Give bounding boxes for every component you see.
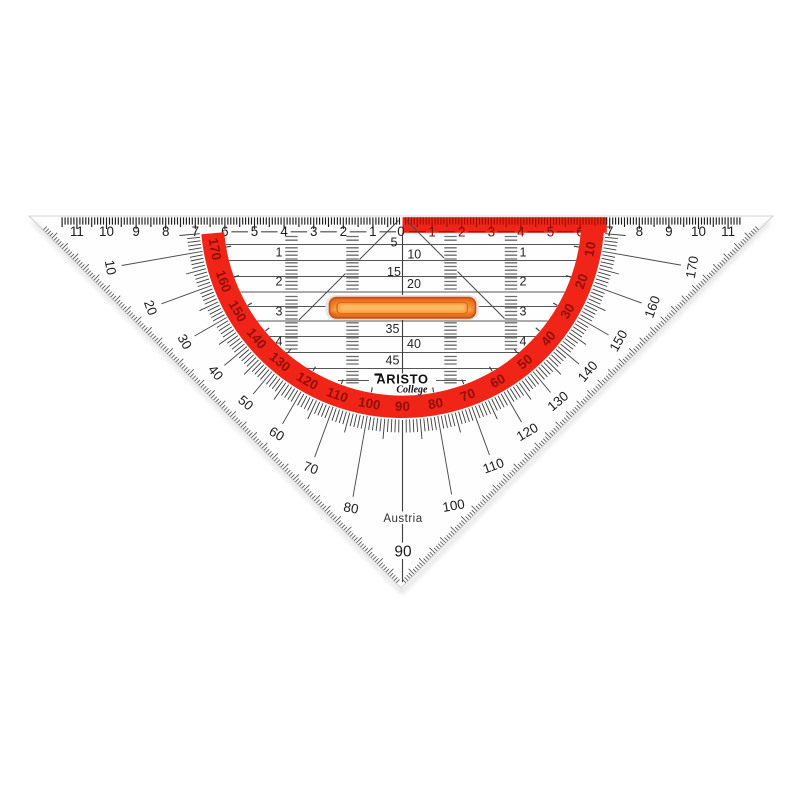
svg-text:9: 9 [665,224,672,239]
svg-text:45: 45 [386,354,400,368]
svg-text:80: 80 [427,395,444,412]
svg-text:11: 11 [721,224,735,239]
svg-text:7: 7 [606,224,613,239]
svg-text:40: 40 [407,337,421,351]
svg-text:10: 10 [407,247,421,261]
svg-text:2: 2 [458,225,465,240]
svg-text:90: 90 [394,544,412,561]
svg-text:10: 10 [102,259,119,276]
svg-text:Austria: Austria [383,513,422,525]
svg-text:15: 15 [387,265,401,279]
svg-text:10: 10 [581,240,598,257]
svg-text:3: 3 [520,305,527,319]
svg-text:5: 5 [391,236,398,250]
svg-text:1: 1 [520,246,527,260]
svg-text:10: 10 [691,224,706,239]
svg-text:7: 7 [192,224,199,239]
svg-text:20: 20 [407,277,421,291]
svg-text:2: 2 [520,275,527,289]
svg-text:10: 10 [99,224,114,239]
svg-text:2: 2 [276,275,283,289]
svg-text:8: 8 [162,224,169,239]
svg-text:1: 1 [369,224,376,239]
svg-text:3: 3 [310,224,317,239]
svg-text:College: College [396,385,428,396]
svg-text:9: 9 [132,224,139,239]
svg-text:1: 1 [428,225,435,240]
svg-text:80: 80 [342,499,359,516]
svg-text:2: 2 [340,224,347,239]
svg-text:5: 5 [547,225,554,240]
svg-text:0: 0 [397,224,404,239]
svg-text:4: 4 [517,225,525,240]
svg-text:8: 8 [636,224,643,239]
svg-text:3: 3 [276,305,283,319]
svg-text:35: 35 [386,322,400,336]
svg-text:11: 11 [70,224,84,239]
svg-text:5: 5 [251,224,258,239]
svg-text:3: 3 [488,225,495,240]
svg-text:90: 90 [395,399,410,414]
svg-text:1: 1 [276,246,283,260]
svg-text:4: 4 [520,335,527,349]
